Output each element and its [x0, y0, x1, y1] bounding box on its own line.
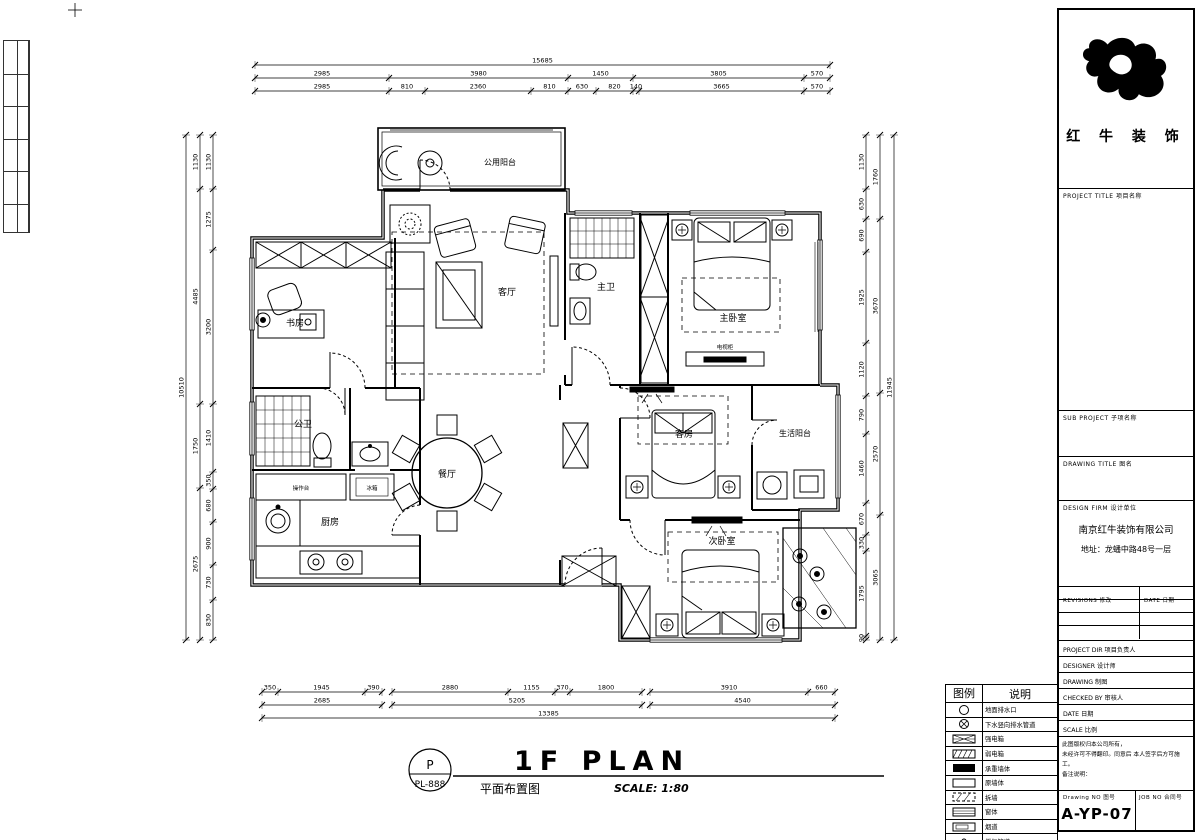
label-tv-cabinet: 电视柜: [717, 343, 734, 351]
legend-label: 燃气管道: [983, 837, 1010, 840]
job-no-label: JOB NO 合同号: [1135, 791, 1193, 801]
dimension-text: 1460: [858, 460, 866, 477]
dimension-text: 1945: [313, 684, 330, 692]
dot-icon: [946, 834, 983, 840]
room-label-master-bedroom: 主卧室: [719, 312, 746, 324]
drawing-sheet: 公用阳台 客厅 书房 主卫 主卧室 公卫 厨房 餐厅 客房 生活阳台 次卧室 操…: [0, 0, 1200, 840]
legend-row: 承重墙体: [946, 761, 1057, 776]
dimension-text: 1760: [872, 169, 880, 186]
room-label-master-bath: 主卫: [597, 281, 615, 293]
wall-cavity-lines: [252, 190, 838, 640]
dimension-text: 820: [608, 83, 620, 91]
company-name: 红 牛 装 饰: [1059, 126, 1193, 146]
dimension-text: 11945: [886, 377, 894, 398]
dimension-text: 3805: [710, 70, 727, 78]
drawing-number-section: Drawing NO 图号 A-YP-07 JOB NO 合同号: [1059, 790, 1193, 832]
room-label-second-bedroom: 次卧室: [708, 535, 735, 547]
room-label-service-balcony: 生活阳台: [779, 428, 811, 438]
room-label-dining: 餐厅: [438, 468, 456, 480]
dimension-text: 4540: [734, 697, 751, 705]
dimension-text: 2360: [470, 83, 487, 91]
box-dash-hatch-icon: [946, 791, 983, 805]
furniture: [256, 146, 856, 638]
detail-ref-number: PL-888: [415, 780, 446, 790]
drain-circle-icon: [946, 703, 983, 717]
drawing-no-label: Drawing NO 图号: [1059, 791, 1135, 801]
room-label-guest: 客房: [675, 428, 693, 440]
notes-section: 此图版权归本公司所有， 未经许可不得翻印。同意后 本人签字后方可施工。 备注说明…: [1059, 736, 1193, 790]
dimension-text: 2570: [872, 446, 880, 463]
field-row-project-dir: PROJECT DIR 项目负责人: [1059, 640, 1193, 656]
dimension-text: 1925: [858, 289, 866, 306]
legend-label: 弱电箱: [983, 749, 1004, 758]
circle-cross-icon: [946, 718, 983, 732]
dimension-text: 330: [858, 537, 866, 549]
company-logo-icon: [1080, 28, 1172, 120]
box-hatch-icon: [946, 747, 983, 761]
legend-row: 地面排水口: [946, 703, 1057, 718]
dimension-text: 10510: [178, 377, 186, 398]
legend-label: 承重墙体: [983, 764, 1010, 773]
drawing-no-value: A-YP-07: [1059, 805, 1135, 823]
dimension-text: 1410: [205, 430, 213, 447]
dimension-text: 3065: [872, 569, 880, 586]
dimension-text: 3980: [470, 70, 487, 78]
dimension-text: 1750: [192, 438, 200, 455]
project-title-section: PROJECT TITLE 项目名称: [1059, 188, 1193, 410]
revision-row: [1059, 613, 1193, 626]
dimension-text: 2880: [442, 684, 459, 692]
box-crosshatch-icon: [946, 732, 983, 746]
dimension-text: 690: [858, 229, 866, 241]
field-row-drawing: DRAWING 制图: [1059, 672, 1193, 688]
dimension-text: 1130: [205, 154, 213, 171]
room-label-kitchen: 厨房: [321, 516, 339, 528]
legend-label: 下水竖向排水管道: [983, 720, 1035, 729]
note-line-2: 未经许可不得翻印。同意后 本人签字后方可施工。: [1062, 751, 1190, 771]
field-row-date: DATE 日期: [1059, 704, 1193, 720]
dimension-text: 730: [205, 576, 213, 588]
dimension-layer: 1568529853980145038055702985810236081063…: [178, 57, 899, 723]
windows: [250, 211, 840, 642]
sub-project-label: SUB PROJECT 子项名称: [1059, 411, 1193, 422]
dimension-text: 15685: [532, 57, 553, 65]
legend-row: 窗体: [946, 805, 1057, 820]
box-empty-icon: [946, 776, 983, 790]
field-row-scale: SCALE 比例: [1059, 720, 1193, 736]
dimension-text: 810: [543, 83, 555, 91]
revisions-table: REVISIONS 修改 DATE 日期: [1059, 586, 1193, 640]
box-solid-icon: [946, 761, 983, 775]
legend-label: 强电箱: [983, 734, 1004, 743]
drawing-title-section: DRAWING TITLE 图名: [1059, 456, 1193, 500]
revision-row: [1059, 626, 1193, 639]
dimension-text: 1130: [858, 154, 866, 171]
legend-row: 下水竖向排水管道: [946, 718, 1057, 733]
field-rows-section: PROJECT DIR 项目负责人 DESIGNER 设计师 DRAWING 制…: [1059, 640, 1193, 736]
legend-row: 弱电箱: [946, 747, 1057, 762]
dimension-text: 810: [401, 83, 413, 91]
dimension-text: 900: [205, 537, 213, 549]
drawing-title-label: DRAWING TITLE 图名: [1059, 457, 1193, 468]
company-full-name: 南京红牛装饰有限公司: [1059, 522, 1193, 536]
dimension-text: 3200: [205, 319, 213, 336]
registration-mark: [68, 3, 82, 17]
dimension-text: 370: [556, 684, 568, 692]
label-fridge: 冰箱: [366, 484, 378, 492]
dimension-text: 2985: [314, 83, 331, 91]
drawing-title-footer: P PL-888 1F PLAN 平面布置图 SCALE: 1:80: [409, 746, 884, 796]
dimension-text: 5205: [509, 697, 526, 705]
signoff-strip: [3, 40, 30, 233]
detail-ref-letter: P: [426, 758, 433, 772]
label-counter: 操作台: [293, 484, 310, 492]
dimension-text: 1800: [598, 684, 615, 692]
dimension-text: 390: [367, 684, 379, 692]
field-row-designer: DESIGNER 设计师: [1059, 656, 1193, 672]
field-row-checked-by: CHECKED BY 审核人: [1059, 688, 1193, 704]
room-label-living: 客厅: [498, 286, 516, 298]
note-line-1: 此图版权归本公司所有，: [1062, 741, 1190, 751]
box-duct-icon: [946, 820, 983, 834]
dimension-text: 680: [205, 499, 213, 511]
dimension-text: 2675: [192, 556, 200, 573]
dimension-text: 2985: [314, 70, 331, 78]
dimension-text: 3910: [721, 684, 738, 692]
dimension-text: 570: [811, 70, 823, 78]
legend-label: 拆墙: [983, 793, 998, 802]
box-lines-icon: [946, 805, 983, 819]
interior-walls: [252, 213, 820, 585]
sub-project-section: SUB PROJECT 子项名称: [1059, 410, 1193, 456]
room-label-study: 书房: [286, 317, 304, 329]
dimension-text: 630: [576, 83, 588, 91]
legend-row: 燃气管道: [946, 834, 1057, 840]
exterior-walls: [252, 190, 838, 640]
legend-row: 烟道: [946, 820, 1057, 835]
room-label-bath: 公卫: [294, 419, 312, 430]
dimension-text: 790: [858, 409, 866, 421]
legend-label: 烟道: [983, 822, 998, 831]
legend-label: 原墙体: [983, 778, 1004, 787]
dimension-text: 1795: [858, 585, 866, 602]
legend-table: 图例 说明 地面排水口 下水竖向排水管道 强电箱 弱电箱 承重墙体 原墙体 拆墙…: [945, 684, 1058, 840]
dimension-text: 1450: [592, 70, 609, 78]
company-address: 地址：龙蟠中路48号一层: [1059, 544, 1193, 555]
dimension-text: 3665: [713, 83, 730, 91]
legend-header-desc: 说明: [983, 686, 1057, 702]
dimension-text: 350: [205, 474, 213, 486]
dimension-text: 4485: [192, 288, 200, 305]
dimension-text: 1130: [192, 154, 200, 171]
design-firm-label: DESIGN FIRM 设计单位: [1059, 501, 1193, 512]
design-firm-section: DESIGN FIRM 设计单位 南京红牛装饰有限公司 地址：龙蟠中路48号一层: [1059, 500, 1193, 586]
plan-title-en: 1F PLAN: [514, 746, 690, 777]
legend-label: 窗体: [983, 807, 998, 816]
legend-row: 拆墙: [946, 791, 1057, 806]
legend-label: 地面排水口: [983, 705, 1016, 714]
title-block: 红 牛 装 饰 PROJECT TITLE 项目名称 SUB PROJECT 子…: [1057, 8, 1195, 832]
note-line-3: 备注说明：: [1062, 771, 1190, 781]
plan-title-cn: 平面布置图: [480, 782, 540, 796]
legend-row: 强电箱: [946, 732, 1057, 747]
room-label-public-balcony: 公用阳台: [484, 157, 516, 167]
project-title-label: PROJECT TITLE 项目名称: [1059, 189, 1193, 200]
revision-row: [1059, 600, 1193, 613]
dimension-text: 570: [811, 83, 823, 91]
dimension-text: 13385: [538, 710, 559, 718]
legend-row: 原墙体: [946, 776, 1057, 791]
balcony-walls: [378, 128, 565, 190]
dimension-text: 660: [815, 684, 827, 692]
dimension-text: 2685: [314, 697, 331, 705]
logo-section: 红 牛 装 饰: [1059, 10, 1193, 188]
dimension-text: 140: [630, 83, 642, 91]
dimension-text: 1155: [523, 684, 540, 692]
dimension-text: 1275: [205, 211, 213, 228]
plan-scale: SCALE: 1:80: [614, 782, 689, 795]
dimension-text: 830: [205, 614, 213, 626]
legend-header-icon: 图例: [946, 685, 983, 702]
dimension-text: 670: [858, 513, 866, 525]
dimension-text: 630: [858, 198, 866, 210]
dimension-text: 350: [264, 684, 276, 692]
dimension-text: 3670: [872, 298, 880, 315]
dimension-text: 90: [858, 634, 866, 642]
dimension-text: 1120: [858, 361, 866, 378]
